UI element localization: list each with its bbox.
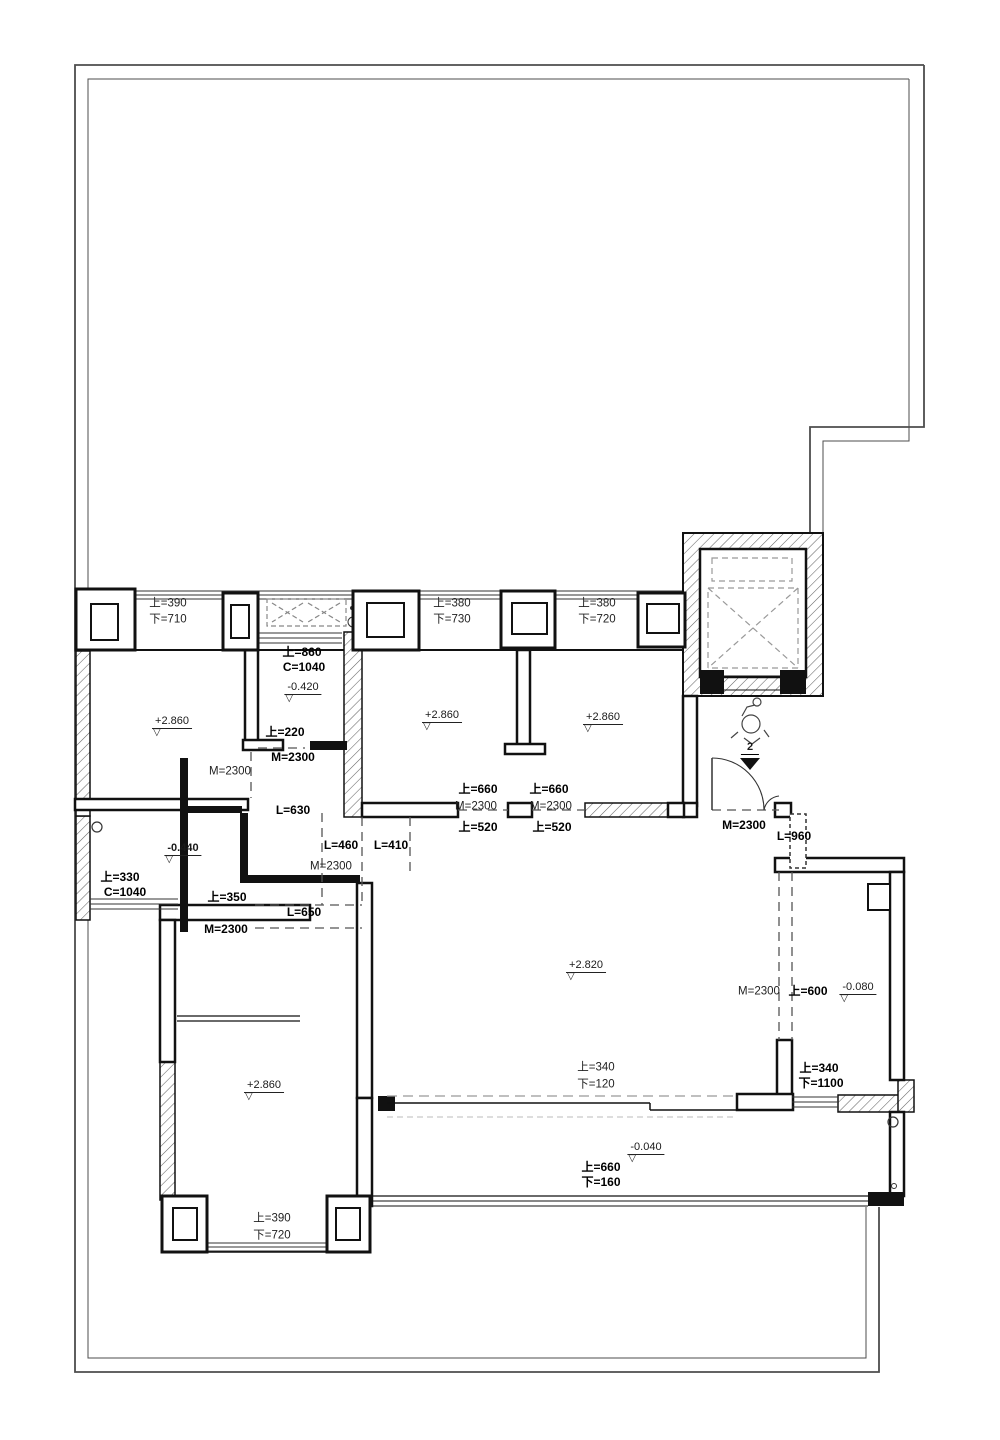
site-boundary — [75, 65, 924, 1372]
person-figure — [731, 698, 769, 744]
window-label-top: 上=390 — [149, 598, 186, 610]
drain-symbol — [92, 822, 102, 832]
elevation-triangle-icon: ▽ — [285, 695, 293, 703]
store-window-height: C=1040 — [104, 886, 146, 898]
door-height-label: M=2300 — [738, 986, 780, 998]
floor-plan: 上=390 下=710 上=380 下=730 上=380 下=720 上=86… — [0, 0, 1000, 1440]
elevation-triangle-icon: ▽ — [153, 729, 161, 737]
door-label-bottom: 上=520 — [532, 821, 571, 833]
balcony-window-top: 上=340 — [577, 1062, 614, 1074]
elevation-marker: +2.860▽ — [422, 710, 462, 731]
elevation-triangle-icon: ▽ — [165, 856, 173, 864]
elevator-shaft — [683, 533, 823, 696]
length-label: L=960 — [777, 830, 811, 842]
door-height-label: M=2300 — [455, 801, 497, 813]
floor-plan-linework — [0, 0, 1000, 1440]
elevation-marker: +2.860▽ — [152, 716, 192, 737]
length-label: L=460 — [324, 839, 358, 851]
appliance-symbol — [267, 599, 346, 626]
door-label-top: 上=660 — [529, 783, 568, 795]
window-label-bottom: 下=720 — [253, 1230, 290, 1242]
bath-window-label: 上=860 — [282, 646, 321, 658]
door-height-label: M=2300 — [209, 766, 251, 778]
foyer-window-top: 上=340 — [799, 1062, 838, 1074]
length-label: L=630 — [276, 804, 310, 816]
foyer-column — [868, 884, 890, 910]
door-height-label: M=2300 — [530, 801, 572, 813]
elevation-marker: -0.420▽ — [284, 682, 321, 703]
window-label-top: 上=380 — [433, 598, 470, 610]
elevation-marker: +2.860▽ — [244, 1080, 284, 1101]
balcony-door-bottom: 下=160 — [581, 1176, 620, 1188]
small-window — [246, 633, 342, 643]
door-label-top: 上=660 — [458, 783, 497, 795]
height-label: 上=350 — [207, 891, 246, 903]
interior-walls — [75, 650, 904, 1206]
elevation-marker: -0.040▽ — [627, 1142, 664, 1163]
elevation-marker: -0.440▽ — [164, 843, 201, 864]
length-label: L=650 — [287, 906, 321, 918]
half-partition — [177, 1016, 300, 1021]
window-label-bottom: 下=730 — [433, 614, 470, 626]
elevation-triangle-icon: ▽ — [567, 973, 575, 981]
window-label-top: 上=380 — [578, 598, 615, 610]
elevation-triangle-icon: ▽ — [423, 723, 431, 731]
door-height-label: M=2300 — [204, 923, 248, 935]
elevation-marker: -0.080▽ — [839, 982, 876, 1003]
window-label-top: 上=390 — [253, 1213, 290, 1225]
dashed-guides — [251, 748, 792, 1040]
door-height-label: M=2300 — [310, 861, 352, 873]
foyer-window-bottom: 下=1100 — [798, 1077, 843, 1089]
store-window-label: 上=330 — [100, 871, 139, 883]
window-label-bottom: 下=720 — [578, 614, 615, 626]
balcony-window-bottom: 下=120 — [577, 1079, 614, 1091]
entry-door — [712, 758, 779, 810]
elevation-triangle-icon: ▽ — [840, 995, 848, 1003]
elevation-triangle-icon: ▽ — [584, 725, 592, 733]
window-label-bottom: 下=710 — [149, 614, 186, 626]
bath-window-height: C=1040 — [283, 661, 325, 673]
balcony-rails — [372, 1096, 868, 1206]
elevation-triangle-icon: ▽ — [245, 1093, 253, 1101]
door-label-bottom: 上=520 — [458, 821, 497, 833]
balcony-door-top: 上=660 — [581, 1161, 620, 1173]
elevation-marker: +2.860▽ — [583, 712, 623, 733]
height-label: 上=220 — [265, 726, 304, 738]
section-marker: 2 — [741, 742, 759, 755]
elevation-marker: +2.820▽ — [566, 960, 606, 981]
door-height-label: M=2300 — [271, 751, 315, 763]
length-label: L=410 — [374, 839, 408, 851]
elevation-triangle-icon: ▽ — [628, 1155, 636, 1163]
foyer-window — [792, 1097, 838, 1107]
height-label: 上=600 — [788, 985, 827, 997]
entry-door-height: M=2300 — [722, 819, 766, 831]
